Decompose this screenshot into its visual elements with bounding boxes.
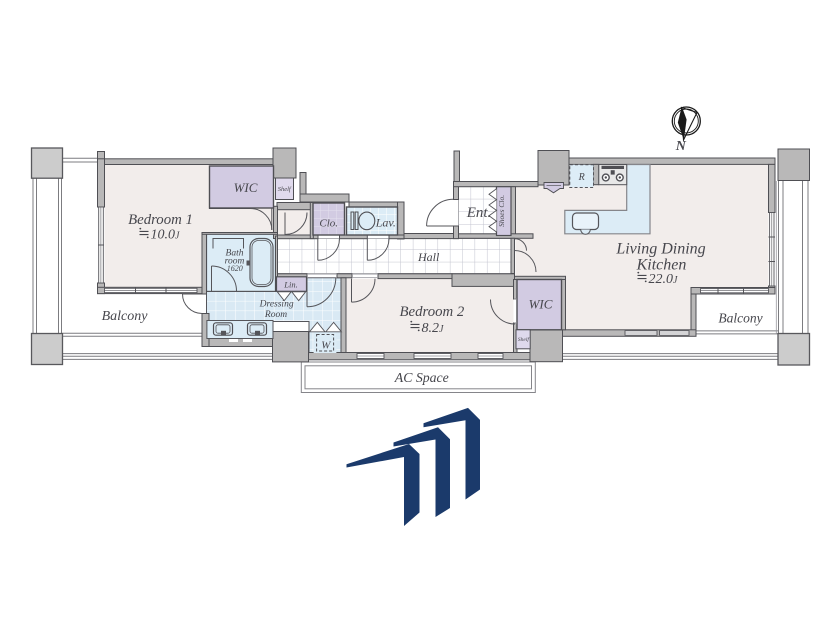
svg-text:Shelf: Shelf xyxy=(518,336,530,343)
svg-text:Living Dining: Living Dining xyxy=(615,241,705,258)
svg-text:Balcony: Balcony xyxy=(102,309,149,324)
svg-text:N: N xyxy=(675,139,687,154)
svg-text:AC Space: AC Space xyxy=(394,370,449,385)
svg-text:Room: Room xyxy=(264,310,287,320)
svg-text:Balcony: Balcony xyxy=(718,310,762,325)
svg-text:Dressing: Dressing xyxy=(259,299,294,309)
svg-text:Shoes Clo.: Shoes Clo. xyxy=(497,195,506,227)
svg-text:R: R xyxy=(578,172,585,183)
svg-text:Bedroom 1: Bedroom 1 xyxy=(128,212,193,228)
svg-text:WIC: WIC xyxy=(529,297,553,312)
svg-text:Lav.: Lav. xyxy=(375,216,396,230)
svg-text:8.2J: 8.2J xyxy=(422,321,445,336)
svg-text:Clo.: Clo. xyxy=(319,217,338,229)
svg-text:Hall: Hall xyxy=(417,250,440,264)
svg-text:Ent.: Ent. xyxy=(466,205,492,221)
svg-text:WIC: WIC xyxy=(234,180,258,195)
svg-text:22.0J: 22.0J xyxy=(649,272,679,287)
svg-text:Lin.: Lin. xyxy=(283,279,297,289)
svg-text:W: W xyxy=(321,339,331,351)
svg-text:Bedroom 2: Bedroom 2 xyxy=(400,304,465,320)
svg-text:10.0J: 10.0J xyxy=(151,228,181,243)
svg-text:Kitchen: Kitchen xyxy=(636,256,687,273)
svg-text:Shelf: Shelf xyxy=(278,186,292,193)
svg-text:1620: 1620 xyxy=(227,264,243,273)
